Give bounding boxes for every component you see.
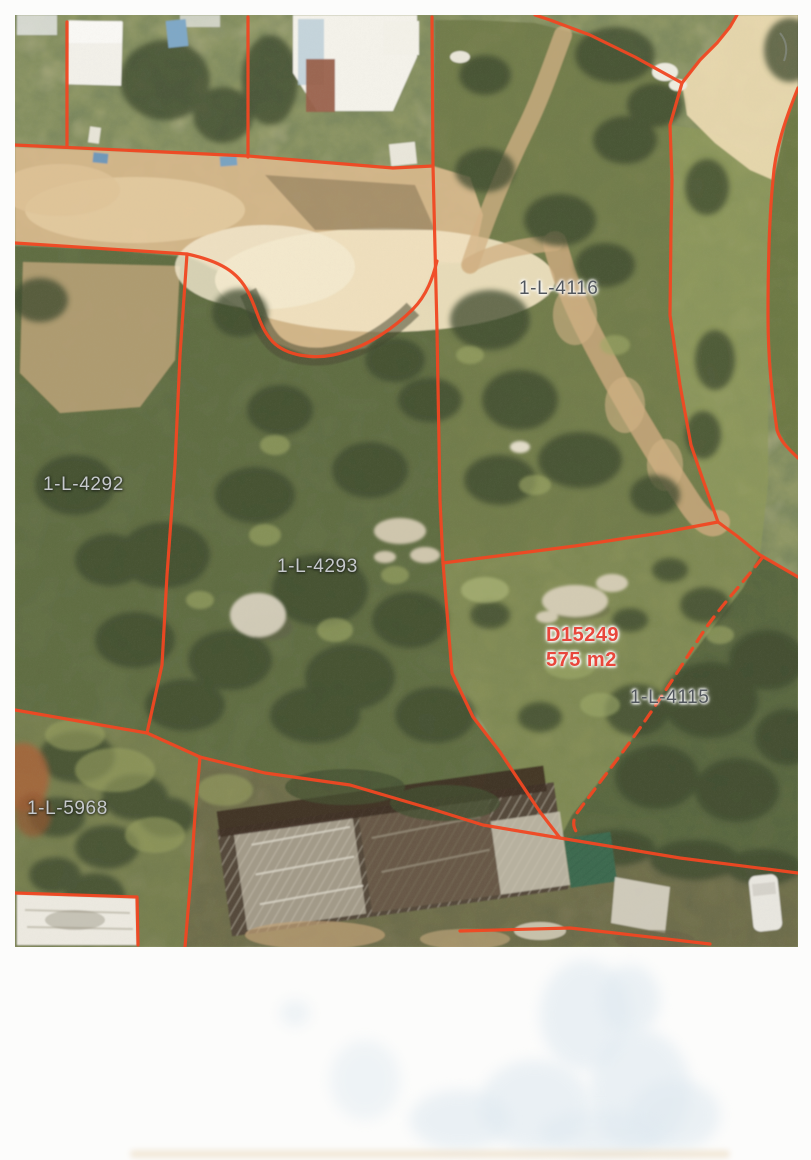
parcel-label-1-L-5968: 1-L-5968 (27, 798, 108, 820)
bleed-through-blob (330, 1040, 400, 1120)
bleed-through-blob (410, 1090, 510, 1150)
parcel-label-1-L-4115: 1-L-4115 (630, 687, 709, 709)
bleed-through-blob (540, 1110, 660, 1155)
bleed-through-blob (280, 1000, 310, 1026)
subject-parcel-label: D15249 575 m2 (546, 623, 619, 673)
scanned-page: { "colors": { "parcel_line": "#f14722", … (0, 0, 811, 1160)
aerial-photo: 1-L-4116 1-L-4292 1-L-4293 1-L-4115 1-L-… (15, 15, 798, 947)
subject-parcel-code: D15249 (546, 623, 619, 648)
scan-grain (15, 15, 798, 947)
parcel-label-1-L-4293: 1-L-4293 (277, 556, 358, 578)
aerial-photo-canvas (15, 15, 798, 947)
parcel-label-1-L-4292: 1-L-4292 (43, 474, 124, 496)
bleed-through-blob (600, 965, 660, 1035)
parcel-label-1-L-4116: 1-L-4116 (519, 278, 598, 300)
bleed-through-strip (130, 1150, 730, 1158)
subject-parcel-area: 575 m2 (546, 648, 619, 673)
